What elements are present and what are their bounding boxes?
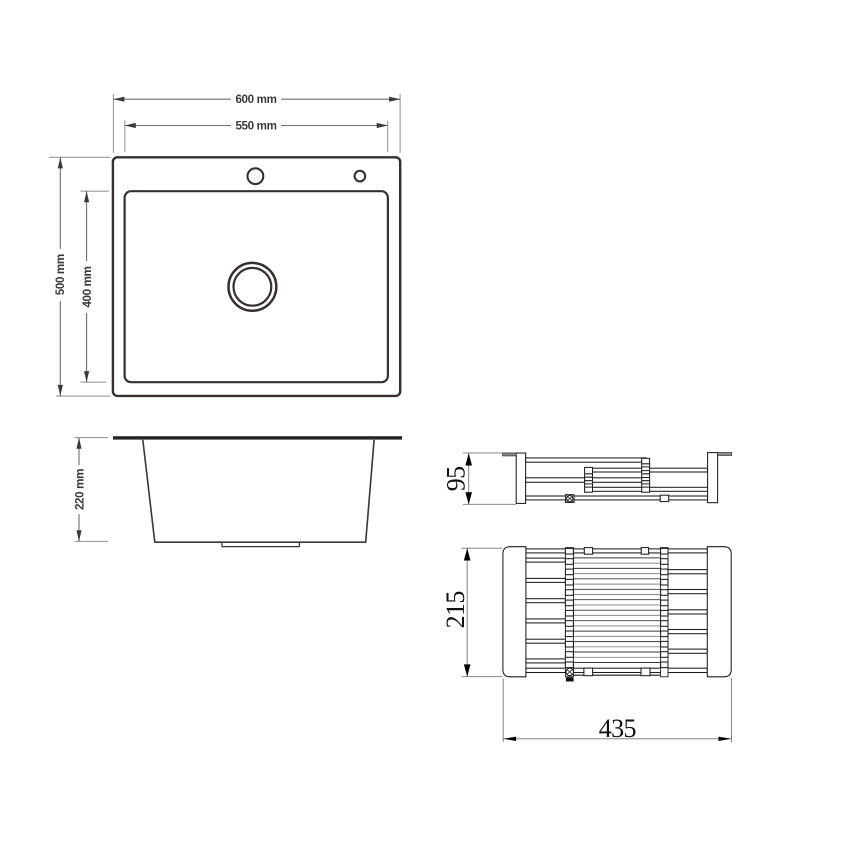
svg-text:550 mm: 550 mm xyxy=(235,120,276,133)
svg-text:435: 435 xyxy=(599,714,636,743)
svg-text:95: 95 xyxy=(441,466,470,491)
svg-text:220 mm: 220 mm xyxy=(73,469,86,510)
svg-text:215: 215 xyxy=(441,591,470,628)
svg-text:400 mm: 400 mm xyxy=(81,266,94,307)
svg-text:500 mm: 500 mm xyxy=(54,254,67,295)
svg-text:600 mm: 600 mm xyxy=(235,93,276,106)
